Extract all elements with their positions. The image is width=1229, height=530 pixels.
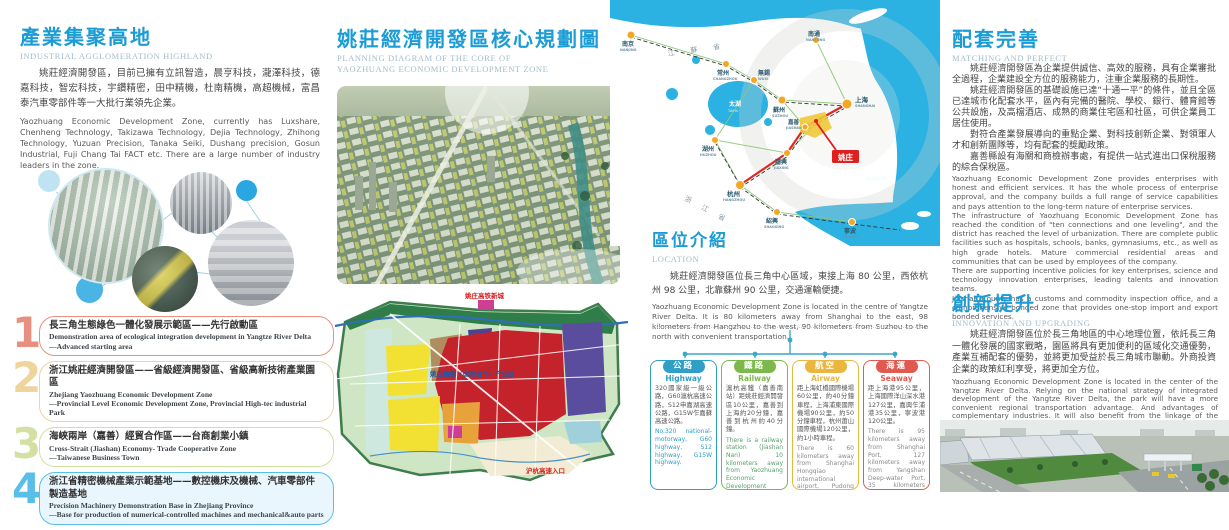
svg-text:杭州: 杭州 <box>727 189 740 198</box>
page-title-industry: 產業集聚高地 <box>20 26 320 48</box>
item-text-en2: —Taiwanese Business Town <box>49 453 324 462</box>
svg-text:SHAOXING: SHAOXING <box>764 225 784 229</box>
decor-circle-light <box>38 170 60 192</box>
item-text-en2: —Advanced starting area <box>49 342 324 351</box>
transport-card-railway: 鐵路 Railway 滬杭高鐵（嘉善南站）距姚莊經濟開發區10公里，嘉善到上海約… <box>721 360 788 490</box>
item-text-en2: —Base for production of numerical-contro… <box>49 510 324 519</box>
panel2-header: 姚莊經濟開發區核心規劃圖 PLANNING DIAGRAM OF THE COR… <box>337 28 623 74</box>
svg-text:CHANGZHOU: CHANGZHOU <box>713 77 738 81</box>
photo-building-facade <box>170 172 232 234</box>
panel1-header: 產業集聚高地 INDUSTRIAL AGGLOMERATION HIGHLAND <box>20 26 320 62</box>
item-number: 2 <box>12 357 41 399</box>
decor-circle-blue <box>236 180 257 201</box>
railway-pill: 鐵路 <box>734 360 776 373</box>
innovation-header: 創新提升 INNOVATION AND UPGRADING <box>952 294 1218 329</box>
matching-title: 配套完善 <box>952 28 1218 50</box>
seaway-text-cn: 距上海港95公里，上海國際洋山深水港127公里，嘉興乍浦港35公里，寧波港120… <box>868 385 925 426</box>
highway-text-cn: 320國家級一級公路，G60滬杭高速公路，S12申嘉湖高速公路，G15W乍嘉蘇高… <box>655 385 712 426</box>
airway-text-en: There is 60 kilometers away from Shangha… <box>797 445 854 490</box>
svg-text:嘉善: 嘉善 <box>787 118 800 126</box>
transport-connector <box>650 330 930 358</box>
svg-text:NANJING: NANJING <box>620 48 637 52</box>
svg-text:NANTONG: NANTONG <box>806 38 825 42</box>
item-title-cn: 浙江省精密機械產業示範基地——數控機床及機械、汽車零部件製造基地 <box>49 476 324 501</box>
item-number: 3 <box>12 423 41 465</box>
item-text-en: Cross-Strait (Jiashan) Economy- Trade Co… <box>49 444 324 453</box>
airway-text-cn: 距上海虹橋國際機場60公里，約40分鐘車程，上海浦東國際機場90公里，約50分鐘… <box>797 385 854 443</box>
item-box: 浙江姚莊經濟開發區——省級經濟開發區、省級高新技術產業園區 Zhejiang Y… <box>39 361 334 422</box>
airway-pill: 航空 <box>805 360 847 373</box>
list-item: 4 浙江省精密機械產業示範基地——數控機床及機械、汽車零部件製造基地 Preci… <box>12 472 334 524</box>
photo-cluster <box>10 164 328 316</box>
matching-subtitle: MATCHING AND PERFECT <box>952 53 1218 64</box>
zoning-map: 姚庄高铁新城 姚庄精密（国际合作）产业区 沪杭高速入口 <box>330 284 632 492</box>
list-item: 2 浙江姚莊經濟開發區——省級經濟開發區、省級高新技術產業園區 Zhejiang… <box>12 361 334 422</box>
item-title-cn: 浙江姚莊經濟開發區——省級經濟開發區、省級高新技術產業園區 <box>49 365 324 390</box>
svg-text:蘇州: 蘇州 <box>772 106 785 114</box>
map-port-label: 洋山深水港 <box>866 175 886 181</box>
industry-paragraph-cn: 姚莊經濟開發區，目前已擁有立訊智造，晨亨科技，瀧澤科技，德嘉科技，智宏科技，宇鑽… <box>20 66 320 111</box>
matching-cn-3: 對符合產業發展導向的重點企業、對科技創新企業、對領軍人才和創新團隊等，均有配套的… <box>952 130 1216 152</box>
photo-machinery <box>132 246 198 312</box>
seaway-text-en: There is 95 kilometers away from Shangha… <box>868 428 925 490</box>
panel1-text: 姚莊經濟開發區，目前已擁有立訊智造，晨亨科技，瀧澤科技，德嘉科技，智宏科技，宇鑽… <box>20 66 320 171</box>
planning-subtitle: PLANNING DIAGRAM OF THE CORE OF YAOZHUAN… <box>337 53 623 74</box>
zoning-label-core: 姚庄精密（国际合作）产业区 <box>429 369 515 378</box>
innovation-title: 創新提升 <box>952 294 1218 315</box>
photo-workshop <box>208 220 294 306</box>
list-item: 1 長三角生態綠色一體化發展示範區——先行啟動區 Demonstration a… <box>12 316 334 356</box>
item-number: 4 <box>12 468 41 510</box>
airway-en-label: Airway <box>797 374 854 383</box>
svg-text:無錫: 無錫 <box>758 69 770 77</box>
svg-text:JIASHAN: JIASHAN <box>785 126 802 130</box>
svg-text:JIAXING: JIAXING <box>773 166 789 170</box>
svg-text:SUZHOU: SUZHOU <box>772 114 788 118</box>
matching-en-3: There are supporting incentive policies … <box>952 266 1218 294</box>
planning-subtitle-line1: PLANNING DIAGRAM OF THE CORE OF <box>337 53 511 63</box>
location-divider <box>652 327 928 328</box>
aerial-render-photo <box>337 86 620 284</box>
svg-text:SHANGHAI: SHANGHAI <box>855 104 875 108</box>
item-text-en2: —Provincial Level Economic Development Z… <box>49 399 324 418</box>
railway-text-cn: 滬杭高鐵（嘉善南站）距姚莊經濟開發區10公里，嘉善到上海約20分鐘，嘉善到杭州約… <box>726 385 783 435</box>
innovation-cn: 姚莊經濟開發區位於長三角地區的中心地理位置，依託長三角一體化發展的國家戰略，園區… <box>952 330 1216 376</box>
map-lake-en: TAIHU <box>727 109 739 113</box>
railway-text-en: There is a railway station (Jiashan Nan)… <box>726 437 783 490</box>
svg-text:湖州: 湖州 <box>702 145 714 153</box>
svg-text:南通: 南通 <box>808 30 820 38</box>
zoning-label-entrance: 沪杭高速入口 <box>526 466 565 475</box>
transport-card-airway: 航空 Airway 距上海虹橋國際機場60公里，約40分鐘車程，上海浦東國際機場… <box>792 360 859 490</box>
highway-en-label: Highway <box>655 374 712 383</box>
item-title-cn: 長三角生態綠色一體化發展示範區——先行啟動區 <box>49 320 324 332</box>
innovation-paragraph-cn: 姚莊經濟開發區位於長三角地區的中心地理位置，依託長三角一體化發展的國家戰略，園區… <box>952 330 1216 376</box>
aerial-render-art <box>337 86 620 284</box>
svg-text:上海: 上海 <box>855 95 869 104</box>
svg-text:紹興: 紹興 <box>766 217 778 225</box>
location-paragraph-cn: 姚莊經濟開發區位長三角中心區域，東接上海 80 公里，西依杭州 98 公里，北靠… <box>652 271 928 298</box>
yaozhuang-point <box>814 119 818 123</box>
yaozhuang-label: 姚庄 <box>837 152 853 162</box>
item-text-en: Precision Machinery Demonstration Base i… <box>49 501 324 510</box>
highway-pill: 公路 <box>663 360 705 373</box>
location-title: 區位介紹 <box>652 232 928 251</box>
svg-text:南京: 南京 <box>622 40 634 48</box>
map-lake-label: 太湖 <box>728 100 741 108</box>
planning-subtitle-line2: YAOZHUANG ECONOMIC DEVELOPMENT ZONE <box>337 64 548 74</box>
svg-text:嘉興: 嘉興 <box>774 158 787 166</box>
matching-en-2: The infrastructure of Yaozhuang Economic… <box>952 211 1218 266</box>
seaway-pill: 海運 <box>876 360 918 373</box>
zoning-label-hsr-town: 姚庄高铁新城 <box>464 291 505 300</box>
highway-text-en: No.320 national-motorway, G60 highway, S… <box>655 428 712 466</box>
panel4-header: 配套完善 MATCHING AND PERFECT <box>952 28 1218 64</box>
region-map: 南京NANJING 常州CHANGZHOU 無錫WUXI 南通NANTONG 蘇… <box>610 0 940 246</box>
svg-text:HANGZHOU: HANGZHOU <box>723 198 745 202</box>
matching-cn-2: 姚莊經濟開發區的基礎設施已達“十通一平”的條件，並且全區已達城市化配套水平，區內… <box>952 86 1216 130</box>
matching-cn-4: 嘉善縣設有海關和商檢辦事處，有提供一站式進出口保稅服務的綜合保稅區。 <box>952 152 1216 174</box>
transport-cards: 公路 Highway 320國家級一級公路，G60滬杭高速公路，S12申嘉湖高速… <box>650 360 930 490</box>
page-subtitle-industry: INDUSTRIAL AGGLOMERATION HIGHLAND <box>20 51 320 62</box>
svg-text:常州: 常州 <box>717 69 729 77</box>
matching-paragraphs-cn: 姚莊經濟開發區為企業提供誠信、高效的服務，具有企業審批全過程，企業建設全方位的服… <box>952 64 1216 174</box>
list-item: 3 海峽兩岸（嘉善）經貿合作區——台商創業小鎮 Cross-Strait (Ji… <box>12 427 334 467</box>
svg-text:WUXI: WUXI <box>758 77 768 81</box>
item-box: 海峽兩岸（嘉善）經貿合作區——台商創業小鎮 Cross-Strait (Jias… <box>39 427 334 467</box>
planning-title: 姚莊經濟開發區核心規劃圖 <box>337 28 623 50</box>
location-subtitle: LOCATION <box>652 254 928 265</box>
innovation-subtitle: INNOVATION AND UPGRADING <box>952 318 1218 329</box>
matching-en-1: Yaozhuang Economic Development Zone prov… <box>952 174 1218 211</box>
industry-paragraph-en: Yaozhuang Economic Development Zone, cur… <box>20 116 320 171</box>
item-text-en: Demonstration area of ecological integra… <box>49 332 324 341</box>
item-title-cn: 海峽兩岸（嘉善）經貿合作區——台商創業小鎮 <box>49 431 324 443</box>
item-number: 1 <box>12 312 41 354</box>
location-section: 區位介紹 LOCATION 姚莊經濟開發區位長三角中心區域，東接上海 80 公里… <box>652 232 928 342</box>
transport-card-seaway: 海運 Seaway 距上海港95公里，上海國際洋山深水港127公里，嘉興乍浦港3… <box>863 360 930 490</box>
transport-card-highway: 公路 Highway 320國家級一級公路，G60滬杭高速公路，S12申嘉湖高速… <box>650 360 717 490</box>
item-box: 浙江省精密機械產業示範基地——數控機床及機械、汽車零部件製造基地 Precisi… <box>39 472 334 524</box>
matching-cn-1: 姚莊經濟開發區為企業提供誠信、高效的服務，具有企業審批全過程，企業建設全方位的服… <box>952 64 1216 86</box>
advantage-list: 1 長三角生態綠色一體化發展示範區——先行啟動區 Demonstration a… <box>12 316 334 530</box>
seaway-en-label: Seaway <box>868 374 925 383</box>
item-text-en: Zhejiang Yaozhuang Economic Development … <box>49 390 324 399</box>
industrial-park-photo <box>940 420 1229 492</box>
railway-en-label: Railway <box>726 374 783 383</box>
svg-text:HUZHOU: HUZHOU <box>700 153 717 157</box>
item-box: 長三角生態綠色一體化發展示範區——先行啟動區 Demonstration are… <box>39 316 334 356</box>
